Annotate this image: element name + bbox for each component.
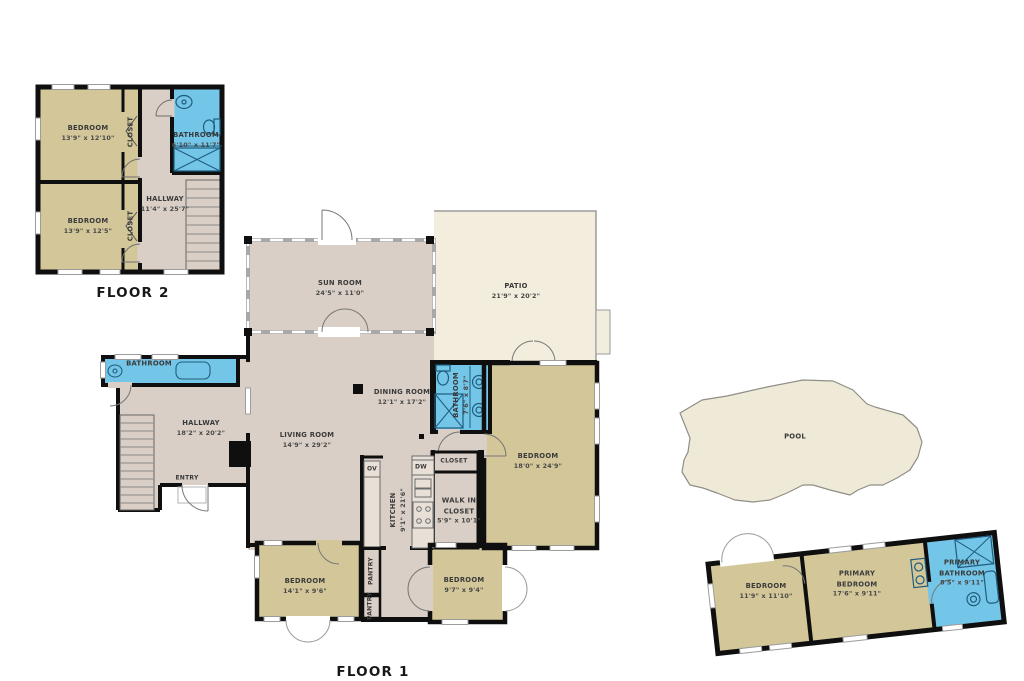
floor2-title: FLOOR 2	[96, 285, 169, 301]
floor2-bedroom-top-room	[38, 87, 140, 272]
floorplan-page: { "titles": { "floor2": "FLOOR 2", "floo…	[0, 0, 1024, 681]
patio-notch	[596, 310, 610, 354]
floor1-title: FLOOR 1	[336, 664, 409, 680]
floor2-stairs	[186, 180, 222, 272]
fireplace	[229, 441, 251, 467]
floor2-plan	[36, 85, 223, 275]
sun-room	[248, 240, 434, 332]
closet-room	[432, 452, 478, 472]
living-dining-area	[248, 332, 434, 550]
floor1-stairs	[120, 415, 154, 510]
walk-in-closet-room	[432, 472, 478, 548]
floorplan-svg	[0, 0, 1024, 681]
guest-house-plan	[703, 507, 1005, 657]
patio-area	[434, 211, 596, 362]
support-post	[353, 384, 363, 394]
bedroom-bottom-left-room	[257, 543, 361, 619]
pool-shape	[680, 380, 922, 502]
bedroom-bottom-mid-room	[430, 545, 505, 622]
bathroom-small-room	[103, 357, 238, 385]
